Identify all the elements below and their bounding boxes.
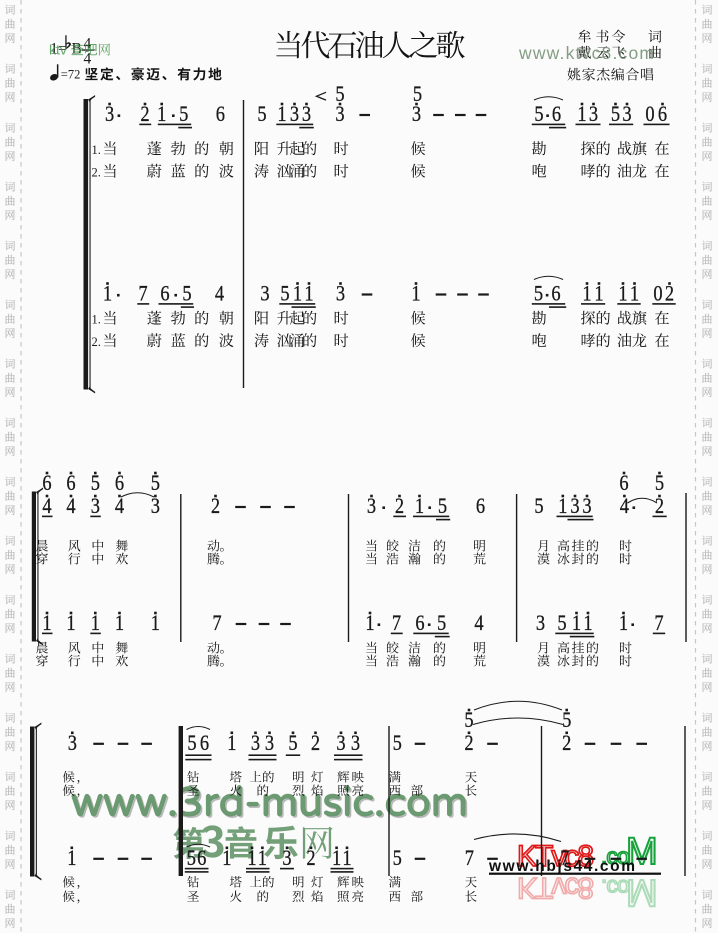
svg-text:5: 5 <box>393 731 402 755</box>
svg-text:1: 1 <box>332 846 341 870</box>
svg-text:7: 7 <box>212 611 221 635</box>
svg-text:6: 6 <box>216 102 225 126</box>
svg-text:4: 4 <box>620 494 629 518</box>
svg-text:1: 1 <box>365 611 374 635</box>
svg-text:1: 1 <box>227 731 236 755</box>
svg-text:5: 5 <box>437 611 446 635</box>
svg-text:6: 6 <box>42 471 51 495</box>
svg-text:3: 3 <box>265 731 274 755</box>
svg-text:0: 0 <box>645 102 654 126</box>
svg-text:3: 3 <box>412 102 421 126</box>
svg-text:3: 3 <box>336 282 345 306</box>
svg-text:2: 2 <box>311 731 320 755</box>
svg-text:6: 6 <box>551 282 560 306</box>
svg-text:5: 5 <box>557 611 566 635</box>
svg-text:1: 1 <box>304 282 313 306</box>
svg-text:1: 1 <box>103 282 112 306</box>
svg-text:3: 3 <box>589 102 598 126</box>
svg-text:7: 7 <box>392 611 401 635</box>
svg-text:ktv: ktv <box>49 42 67 58</box>
svg-text:3: 3 <box>282 846 291 870</box>
svg-text:1: 1 <box>594 282 603 306</box>
svg-text:0: 0 <box>653 282 662 306</box>
svg-text:5: 5 <box>187 846 196 870</box>
svg-text:4: 4 <box>215 282 224 306</box>
svg-text:3: 3 <box>367 494 376 518</box>
svg-text:1: 1 <box>415 494 424 518</box>
svg-text:2: 2 <box>211 494 220 518</box>
svg-text:4: 4 <box>66 494 75 518</box>
svg-text:2.: 2. <box>92 166 101 180</box>
svg-text:1: 1 <box>572 611 581 635</box>
svg-text:2: 2 <box>464 731 473 755</box>
svg-text:1: 1 <box>618 282 627 306</box>
svg-text:2: 2 <box>655 494 664 518</box>
svg-text:1.: 1. <box>92 313 101 327</box>
svg-text:1: 1 <box>583 611 592 635</box>
svg-text:1: 1 <box>342 846 351 870</box>
svg-text:1: 1 <box>558 494 567 518</box>
svg-text:4: 4 <box>115 494 124 518</box>
svg-text:3: 3 <box>335 102 344 126</box>
svg-text:5: 5 <box>280 282 289 306</box>
svg-text:6: 6 <box>200 731 209 755</box>
svg-text:3: 3 <box>336 731 345 755</box>
svg-text:1: 1 <box>577 102 586 126</box>
svg-text:3: 3 <box>290 102 299 126</box>
svg-text:5: 5 <box>655 471 664 495</box>
svg-text:1: 1 <box>66 611 75 635</box>
svg-text:www.hbjs44.com: www.hbjs44.com <box>488 858 637 875</box>
svg-text:3: 3 <box>582 494 591 518</box>
svg-text:3: 3 <box>622 102 631 126</box>
svg-text:1: 1 <box>619 611 628 635</box>
svg-text:5: 5 <box>534 282 543 306</box>
svg-text:6: 6 <box>115 471 124 495</box>
svg-text:2: 2 <box>395 494 404 518</box>
svg-text:1: 1 <box>42 611 51 635</box>
svg-text:2: 2 <box>562 731 571 755</box>
svg-text:1: 1 <box>247 846 256 870</box>
svg-text:3: 3 <box>91 494 100 518</box>
svg-text:2: 2 <box>665 282 674 306</box>
svg-text:5: 5 <box>257 102 266 126</box>
svg-text:3: 3 <box>251 731 260 755</box>
svg-text:5: 5 <box>393 846 402 870</box>
svg-text:1: 1 <box>582 282 591 306</box>
svg-text:6: 6 <box>552 102 561 126</box>
svg-text:www.ktvc8.com: www.ktvc8.com <box>518 43 655 63</box>
svg-text:1: 1 <box>258 846 267 870</box>
svg-text:5: 5 <box>91 471 100 495</box>
svg-text:5: 5 <box>187 731 196 755</box>
svg-text:1: 1 <box>157 102 166 126</box>
svg-text:5: 5 <box>288 731 297 755</box>
svg-text:6: 6 <box>619 471 628 495</box>
svg-text:7: 7 <box>138 282 147 306</box>
svg-text:1: 1 <box>411 282 420 306</box>
svg-text:1: 1 <box>222 846 231 870</box>
svg-text:6: 6 <box>197 846 206 870</box>
svg-text:3: 3 <box>68 731 77 755</box>
svg-text:6: 6 <box>160 282 169 306</box>
svg-text:5: 5 <box>182 282 191 306</box>
svg-text:7: 7 <box>465 846 474 870</box>
svg-text:3: 3 <box>570 494 579 518</box>
svg-text:3: 3 <box>151 494 160 518</box>
svg-text:4: 4 <box>42 494 51 518</box>
svg-text:7: 7 <box>654 611 663 635</box>
svg-text:1: 1 <box>277 102 286 126</box>
svg-text:2: 2 <box>306 846 315 870</box>
svg-text:5: 5 <box>534 494 543 518</box>
svg-text:1: 1 <box>630 282 639 306</box>
svg-text:6: 6 <box>476 494 485 518</box>
svg-text:.co: .co <box>601 875 629 901</box>
svg-text:KTvc8: KTvc8 <box>517 871 593 904</box>
svg-text:1: 1 <box>151 611 160 635</box>
svg-text:5: 5 <box>179 102 188 126</box>
svg-text:6: 6 <box>415 611 424 635</box>
svg-text:=72: =72 <box>61 68 81 82</box>
svg-text:3: 3 <box>302 102 311 126</box>
svg-text:5: 5 <box>464 708 473 732</box>
svg-text:5: 5 <box>151 471 160 495</box>
svg-text:2: 2 <box>140 102 149 126</box>
svg-text:1: 1 <box>293 282 302 306</box>
svg-text:6: 6 <box>66 471 75 495</box>
svg-text:1.: 1. <box>92 143 101 157</box>
svg-text:5: 5 <box>534 102 543 126</box>
svg-text:3: 3 <box>351 731 360 755</box>
svg-text:1: 1 <box>115 611 124 635</box>
svg-text:M: M <box>626 871 658 913</box>
svg-text:5: 5 <box>611 102 620 126</box>
svg-text:3: 3 <box>105 102 114 126</box>
svg-text:1: 1 <box>91 611 100 635</box>
svg-text:5: 5 <box>562 708 571 732</box>
svg-text:4: 4 <box>474 611 483 635</box>
svg-text:6: 6 <box>658 102 667 126</box>
svg-text:3: 3 <box>536 611 545 635</box>
svg-text:3: 3 <box>260 282 269 306</box>
svg-text:5: 5 <box>438 494 447 518</box>
svg-text:1: 1 <box>67 846 76 870</box>
svg-text:2.: 2. <box>92 335 101 349</box>
